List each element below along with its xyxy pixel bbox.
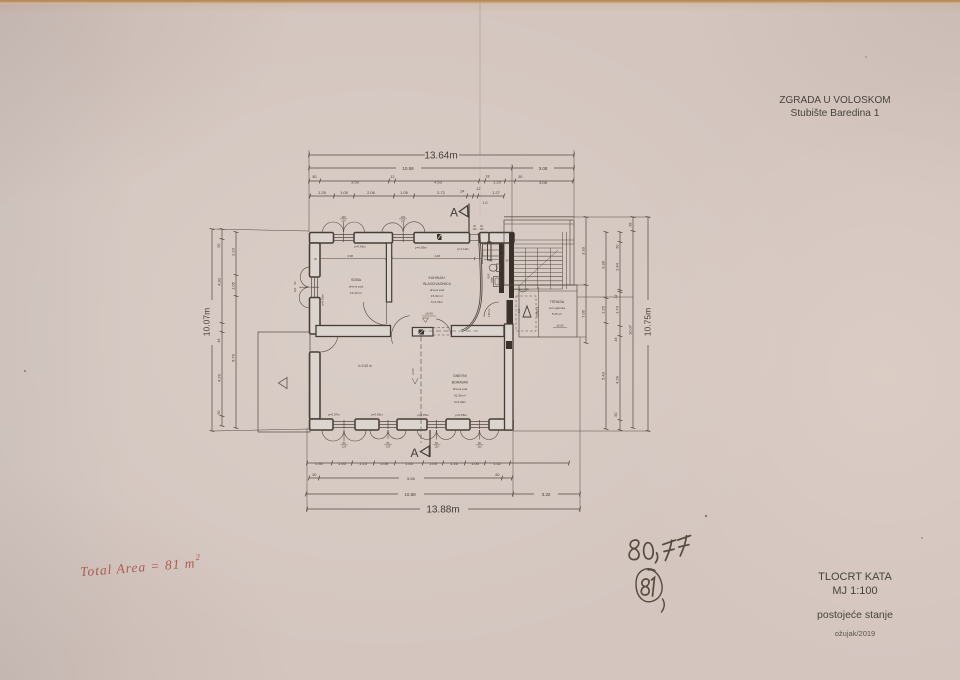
svg-text:1.05: 1.05 (338, 461, 347, 466)
svg-text:.50: .50 (312, 473, 317, 477)
svg-text:120: 120 (480, 228, 485, 231)
svg-text:.48: .48 (614, 338, 618, 343)
svg-text:cem glazura: cem glazura (549, 306, 566, 310)
svg-text:3.08: 3.08 (539, 166, 548, 171)
svg-text:4.29: 4.29 (615, 375, 620, 384)
svg-text:10.75m: 10.75m (643, 308, 653, 336)
svg-text:BLAGOVAONICA: BLAGOVAONICA (423, 282, 451, 286)
svg-text:p=0.85m: p=0.85m (415, 246, 427, 250)
svg-text:p=0.87m: p=0.87m (328, 413, 340, 417)
svg-text:2: 2 (195, 552, 201, 562)
svg-text:.50: .50 (616, 245, 620, 250)
svg-text:1.30: 1.30 (315, 461, 324, 466)
svg-text:+0.05: +0.05 (411, 368, 415, 376)
svg-text:.50: .50 (495, 473, 500, 477)
svg-text:120: 120 (341, 219, 346, 223)
svg-text:1.27: 1.27 (492, 190, 501, 195)
svg-text:.50: .50 (217, 411, 221, 416)
svg-text:3.59: 3.59 (351, 180, 360, 185)
svg-text:h=3.01m: h=3.01m (431, 300, 444, 304)
svg-text:1.32: 1.32 (493, 461, 502, 466)
svg-text:down: down (491, 276, 494, 282)
svg-text:1.45: 1.45 (405, 461, 414, 466)
svg-text:7.06: 7.06 (581, 309, 586, 318)
svg-text:ZGRADA U VOLOSKOM: ZGRADA U VOLOSKOM (779, 95, 890, 106)
svg-text:80: 80 (343, 441, 346, 445)
svg-text:drveni pod: drveni pod (349, 285, 364, 289)
svg-text:120: 120 (477, 445, 482, 449)
svg-text:10.58: 10.58 (402, 166, 414, 171)
svg-text:3.38: 3.38 (601, 260, 606, 269)
svg-text:120: 120 (401, 219, 406, 223)
svg-text:p=0.85m: p=0.85m (321, 294, 325, 306)
svg-text:13.88m: 13.88m (426, 505, 459, 516)
svg-text:100: 100 (401, 215, 406, 219)
svg-text:4.30: 4.30 (217, 277, 222, 286)
svg-text:1.15: 1.15 (493, 180, 502, 185)
svg-text:A: A (410, 446, 418, 460)
svg-text:15.43 m²: 15.43 m² (350, 291, 362, 295)
svg-text:41.00 m²: 41.00 m² (454, 394, 466, 398)
svg-text:p=0.82m: p=0.82m (371, 413, 383, 417)
svg-text:80: 80 (387, 441, 390, 445)
svg-text:.68: .68 (629, 223, 633, 228)
svg-text:5.43: 5.43 (601, 371, 606, 380)
svg-text:.12: .12 (390, 175, 395, 179)
svg-text:10.07: 10.07 (628, 324, 633, 335)
svg-text:10.07m: 10.07m (202, 308, 212, 336)
svg-text:3.33: 3.33 (581, 246, 586, 255)
svg-text:120: 120 (386, 445, 391, 449)
svg-text:3.08: 3.08 (539, 180, 548, 185)
svg-text:1.05: 1.05 (231, 281, 236, 290)
svg-text:90: 90 (506, 260, 509, 263)
svg-text:DNEVNI: DNEVNI (453, 374, 466, 378)
svg-text:2.23: 2.23 (231, 247, 236, 256)
svg-text:1.0: 1.0 (483, 201, 488, 205)
svg-text:1.25: 1.25 (318, 190, 327, 195)
svg-text:.18: .18 (485, 175, 490, 179)
svg-text:.54: .54 (460, 190, 465, 194)
svg-text:120: 120 (473, 228, 478, 231)
svg-text:6.79: 6.79 (231, 353, 236, 362)
svg-text:h=2.62 m: h=2.62 m (358, 364, 372, 368)
svg-text:STAN 1: STAN 1 (536, 306, 540, 317)
svg-text:2.44: 2.44 (615, 262, 620, 271)
svg-text:drveni pod: drveni pod (430, 288, 445, 292)
svg-text:4.29: 4.29 (217, 373, 222, 382)
svg-text:3.98: 3.98 (347, 254, 353, 258)
svg-text:1.46 m²: 1.46 m² (487, 308, 491, 317)
svg-text:drveni pod: drveni pod (453, 387, 468, 391)
svg-text:80: 80 (293, 281, 297, 284)
svg-text:A: A (450, 206, 458, 220)
svg-text:.50: .50 (614, 413, 618, 418)
svg-text:120: 120 (293, 287, 297, 292)
svg-text:105: 105 (517, 308, 521, 313)
svg-text:80: 80 (478, 441, 481, 445)
svg-text:120: 120 (342, 445, 347, 449)
svg-text:MJ 1:100: MJ 1:100 (832, 585, 877, 597)
svg-text:SOBA: SOBA (351, 278, 362, 282)
svg-text:1.05: 1.05 (471, 461, 480, 466)
svg-text:p=1.10m: p=1.10m (457, 247, 469, 251)
svg-text:postojeće stanje: postojeće stanje (817, 609, 893, 621)
svg-text:.50: .50 (312, 175, 317, 179)
svg-text:1A: 1A (490, 260, 493, 263)
svg-text:ožujak/2019: ožujak/2019 (835, 629, 875, 638)
svg-text:1.05: 1.05 (429, 461, 438, 466)
svg-text:h=2.00m: h=2.00m (454, 400, 467, 404)
svg-text:Total Area = 81 m: Total Area = 81 m (80, 555, 196, 579)
svg-text:.50: .50 (217, 244, 221, 249)
svg-text:.48: .48 (217, 339, 221, 344)
svg-text:.50: .50 (518, 175, 523, 179)
svg-text:1.15: 1.15 (359, 461, 368, 466)
svg-text:5.56: 5.56 (407, 476, 416, 481)
svg-text:2.06: 2.06 (367, 190, 376, 195)
svg-text:BORAVAK: BORAVAK (452, 381, 469, 385)
svg-text:.12: .12 (476, 187, 481, 191)
svg-text:KUHINJA+: KUHINJA+ (428, 276, 445, 280)
svg-text:1.74: 1.74 (615, 305, 620, 314)
svg-text:120: 120 (434, 445, 439, 449)
svg-text:1.26: 1.26 (601, 305, 606, 314)
svg-text:3.32: 3.32 (542, 492, 551, 497)
svg-text:±0.00: ±0.00 (425, 312, 433, 316)
svg-text:100: 100 (341, 215, 346, 219)
svg-text:1.05: 1.05 (400, 190, 409, 195)
svg-text:4.53: 4.53 (434, 180, 443, 185)
svg-text:4.48: 4.48 (434, 254, 440, 258)
svg-text:p=0.85m: p=0.85m (417, 413, 429, 417)
svg-text:10.58: 10.58 (404, 492, 416, 497)
svg-text:±0.00: ±0.00 (557, 324, 564, 328)
svg-text:5.25 m²: 5.25 m² (552, 312, 562, 316)
svg-text:80: 80 (435, 441, 438, 445)
svg-text:TLOCRT KATA: TLOCRT KATA (818, 571, 892, 583)
svg-text:2.72: 2.72 (437, 190, 446, 195)
svg-text:TERASA: TERASA (550, 300, 565, 304)
svg-text:Stubište Baredina 1: Stubište Baredina 1 (791, 108, 880, 119)
svg-text:p=0.88m: p=0.88m (455, 413, 467, 417)
svg-text:13.64m: 13.64m (424, 151, 457, 162)
svg-text:1.05: 1.05 (340, 190, 349, 195)
svg-text:p=0.65m: p=0.65m (354, 245, 366, 249)
svg-text:1.08: 1.08 (380, 461, 389, 466)
svg-text:1.16: 1.16 (450, 461, 459, 466)
svg-text:15.02 m²: 15.02 m² (431, 294, 443, 298)
